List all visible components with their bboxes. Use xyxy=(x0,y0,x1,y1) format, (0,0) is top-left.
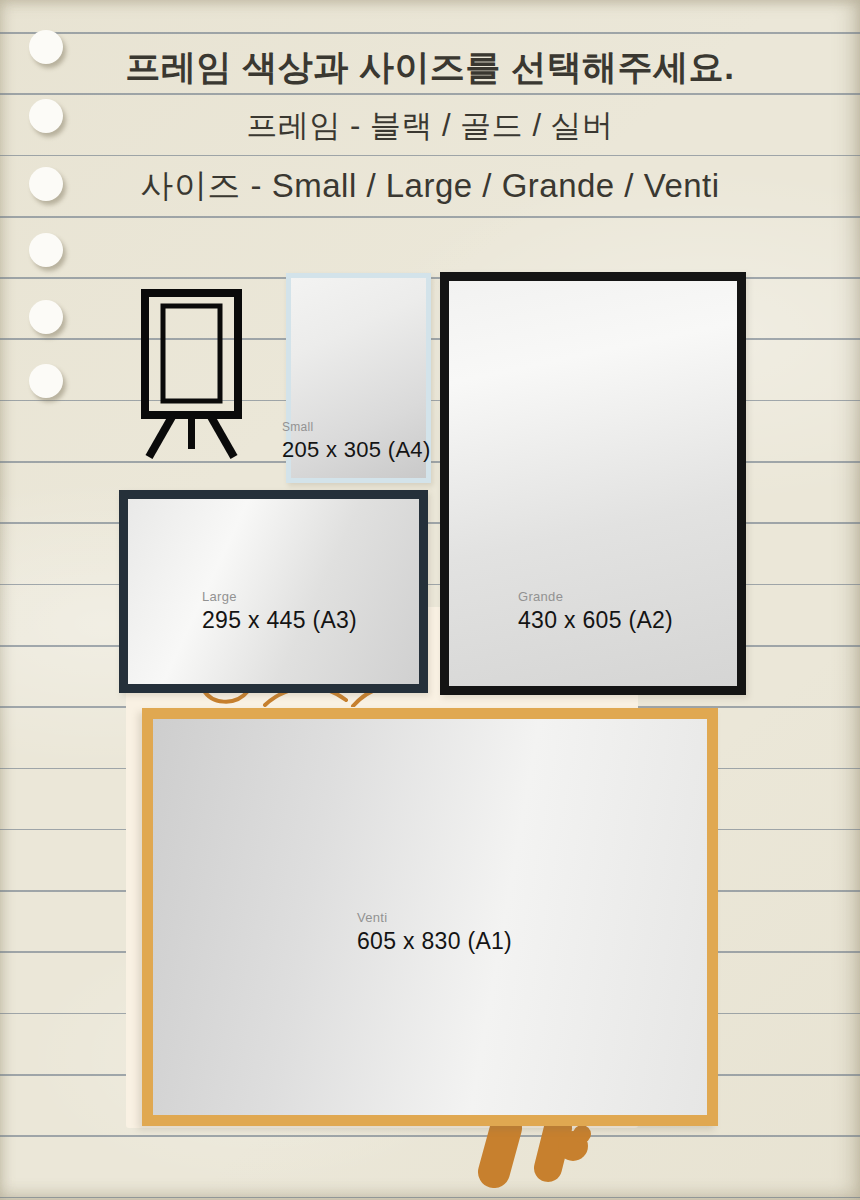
size-dimensions-small: 205 x 305 (A4) xyxy=(282,437,431,463)
frame-size-guide-page: 프레임 색상과 사이즈를 선택해주세요. 프레임 - 블랙 / 골드 / 실버 … xyxy=(0,0,860,1200)
hole-punch xyxy=(29,233,63,267)
orange-easel-legs-icon xyxy=(470,1124,600,1188)
frame-label: Small 205 x 305 (A4) xyxy=(282,420,431,463)
size-name-small: Small xyxy=(282,420,431,434)
frame-label: Venti 605 x 830 (A1) xyxy=(357,910,512,955)
frame-option-small: Small 205 x 305 (A4) xyxy=(286,273,431,483)
hole-punch xyxy=(29,364,63,398)
hole-punch xyxy=(29,300,63,334)
size-name-venti: Venti xyxy=(357,910,512,925)
frame-label: Large 295 x 445 (A3) xyxy=(202,589,357,634)
frame-label: Grande 430 x 605 (A2) xyxy=(518,589,673,634)
frame-option-large: Large 295 x 445 (A3) xyxy=(119,490,428,693)
easel-icon xyxy=(136,287,242,461)
size-dimensions-grande: 430 x 605 (A2) xyxy=(518,607,673,634)
size-dimensions-venti: 605 x 830 (A1) xyxy=(357,928,512,955)
frame-option-grande: Grande 430 x 605 (A2) xyxy=(440,272,746,695)
size-dimensions-large: 295 x 445 (A3) xyxy=(202,607,357,634)
frame-colors-line: 프레임 - 블랙 / 골드 / 실버 xyxy=(0,105,860,147)
sizes-line: 사이즈 - Small / Large / Grande / Venti xyxy=(0,164,860,209)
size-name-grande: Grande xyxy=(518,589,673,604)
size-name-large: Large xyxy=(202,589,357,604)
page-title: 프레임 색상과 사이즈를 선택해주세요. xyxy=(0,44,860,91)
frame-option-venti: Venti 605 x 830 (A1) xyxy=(142,708,718,1126)
